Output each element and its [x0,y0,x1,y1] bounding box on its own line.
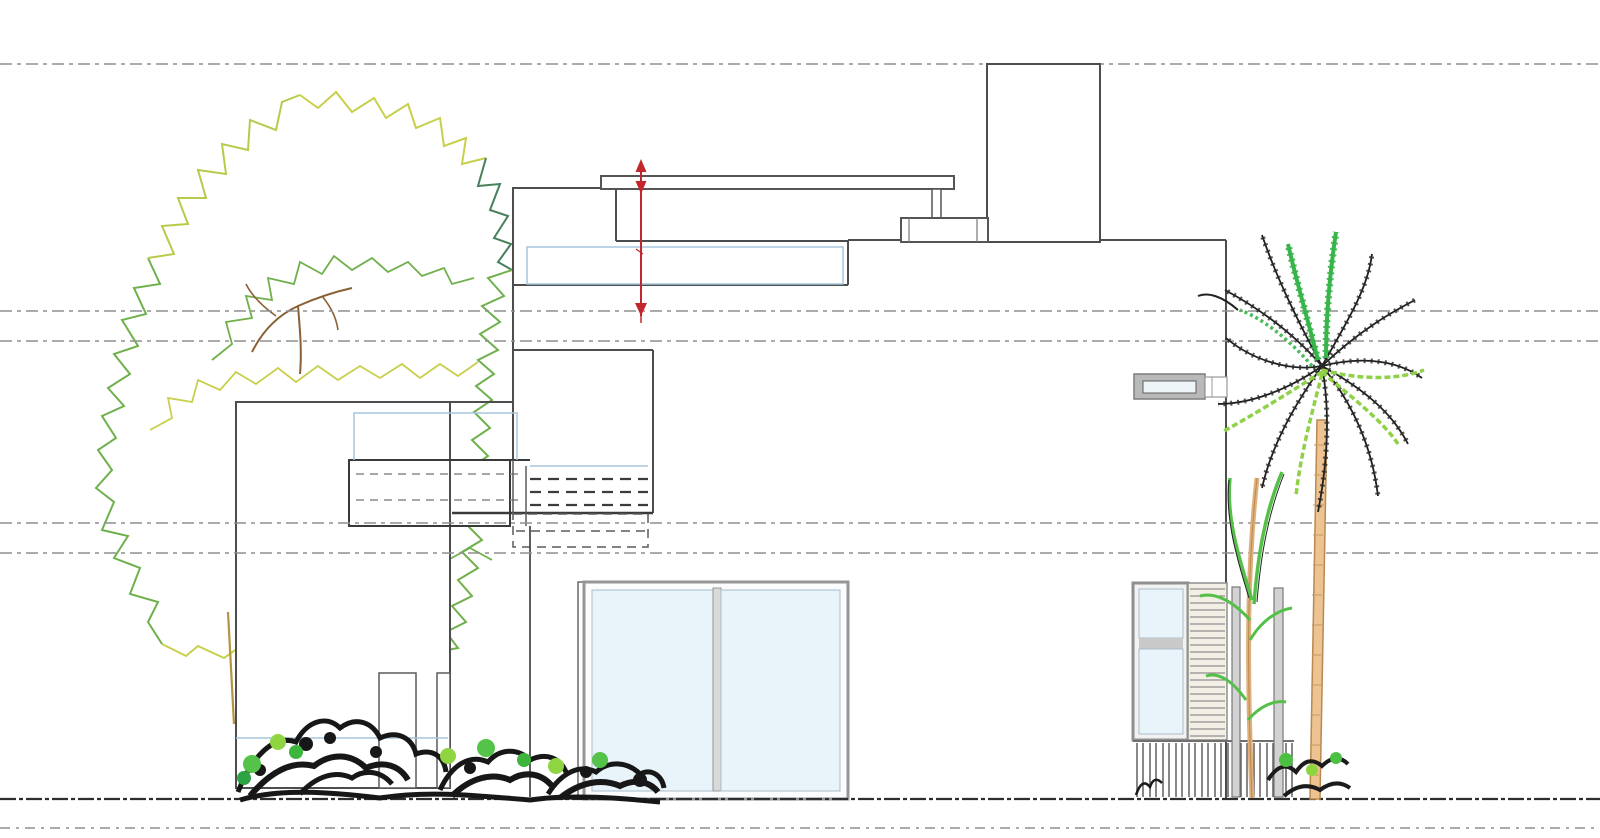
bush-leaf-3 [289,745,303,759]
bush-dot-7 [633,773,647,787]
bush-leaf-5 [440,748,456,764]
sliding-door-mullion [713,588,721,791]
entry-glass-bottom-pane [1139,649,1183,734]
bush-dot-5 [464,762,476,774]
bush-leaf-4 [237,771,251,785]
gate-ground-plant-green-2 [1306,764,1318,776]
slot-window-glass [1143,381,1196,393]
louvre-panel [1188,583,1227,740]
slot-window-corner-return [1205,377,1227,397]
bush-dot-3 [324,732,336,744]
pergola-slab [601,176,954,189]
stair-bulkhead-tower [987,64,1100,242]
bush-leaf-2 [270,734,286,750]
bush-dot-4 [370,746,382,758]
gate-ground-plant-green-1 [1279,753,1293,767]
bush-leaf-9 [592,752,608,768]
bush-leaf-8 [548,758,564,774]
entry-glass-top-pane [1139,589,1183,638]
bush-leaf-6 [477,739,495,757]
wall-fill-balcony [349,460,510,526]
roof-equipment-block [901,218,988,242]
sliding-door-glass-left [592,590,713,791]
sliding-door-glass-right [721,590,840,791]
bush-dot-6 [580,766,592,778]
entry-glass-divider [1139,638,1183,649]
elevation-svg [0,0,1600,838]
bush-leaf-1 [243,755,261,773]
elevation-drawing-page [0,0,1600,838]
bush-leaf-7 [517,753,531,767]
pergola-post [932,189,941,218]
gate-ground-plant-green-3 [1330,752,1342,764]
